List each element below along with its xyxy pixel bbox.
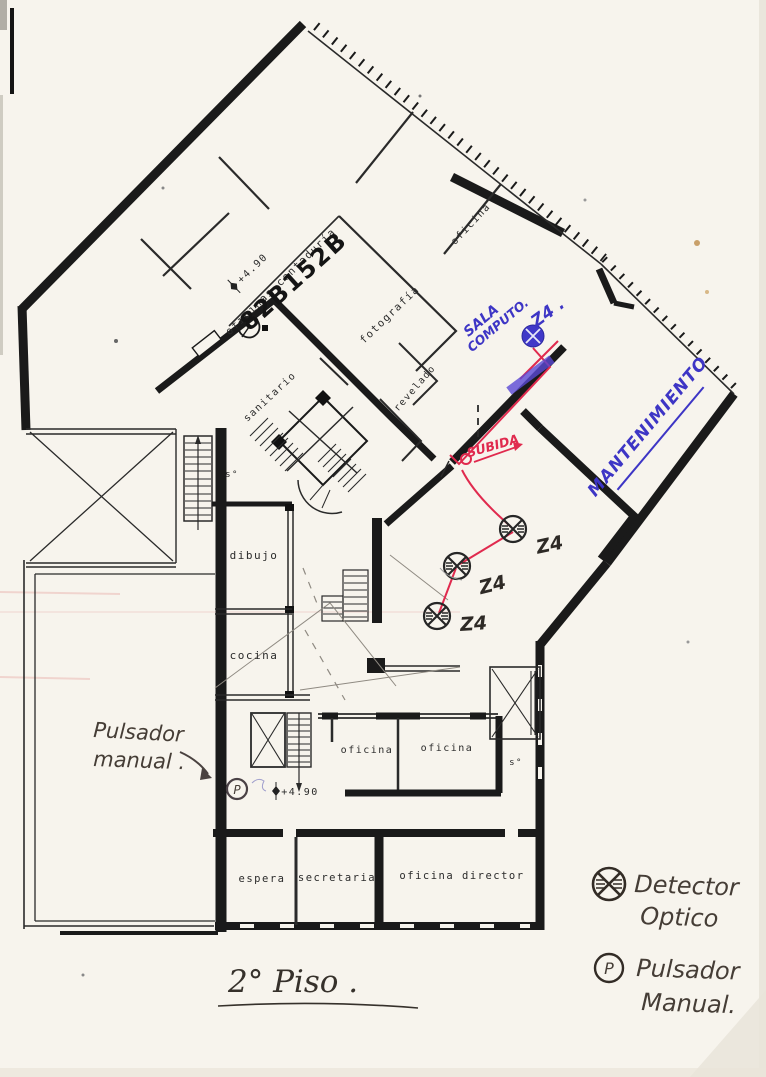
room-label-oficina-right: oficina [421, 743, 474, 754]
room-label-secretaria: secretaria [298, 872, 376, 884]
legend-detector-line1: Detector [634, 870, 742, 902]
elevation-lower-text: +4.90 [281, 787, 319, 798]
room-label-oficina-director: oficina director [399, 870, 524, 882]
zone-label-3: Z4 [458, 612, 487, 636]
floor-title-text: 2° Piso . [227, 964, 358, 1000]
room-label-espera: espera [239, 873, 286, 885]
legend-p-letter: P [604, 959, 614, 978]
pulsador-note-line2: manual . [93, 747, 186, 774]
room-label-dibujo: dibujo [230, 549, 279, 562]
room-label-cocina: cocina [230, 649, 279, 662]
room-label-s-lower: s° [509, 758, 523, 768]
room-label-s-upper: s° [225, 470, 239, 480]
pulsador-p-letter: P [233, 783, 241, 797]
floor-plan-drawing: oficinas contaduría +4.90 82B152B oficin… [0, 0, 766, 1077]
legend-detector-line2: Optico [640, 902, 719, 933]
legend-pulsador-line1: Pulsador [636, 954, 742, 986]
room-label-oficina-left: oficina [341, 745, 394, 756]
pulsador-note-line1: Pulsador [93, 718, 186, 747]
floor-plan-scan: oficinas contaduría +4.90 82B152B oficin… [0, 0, 766, 1077]
legend-pulsador-line2: Manual. [641, 988, 737, 1019]
